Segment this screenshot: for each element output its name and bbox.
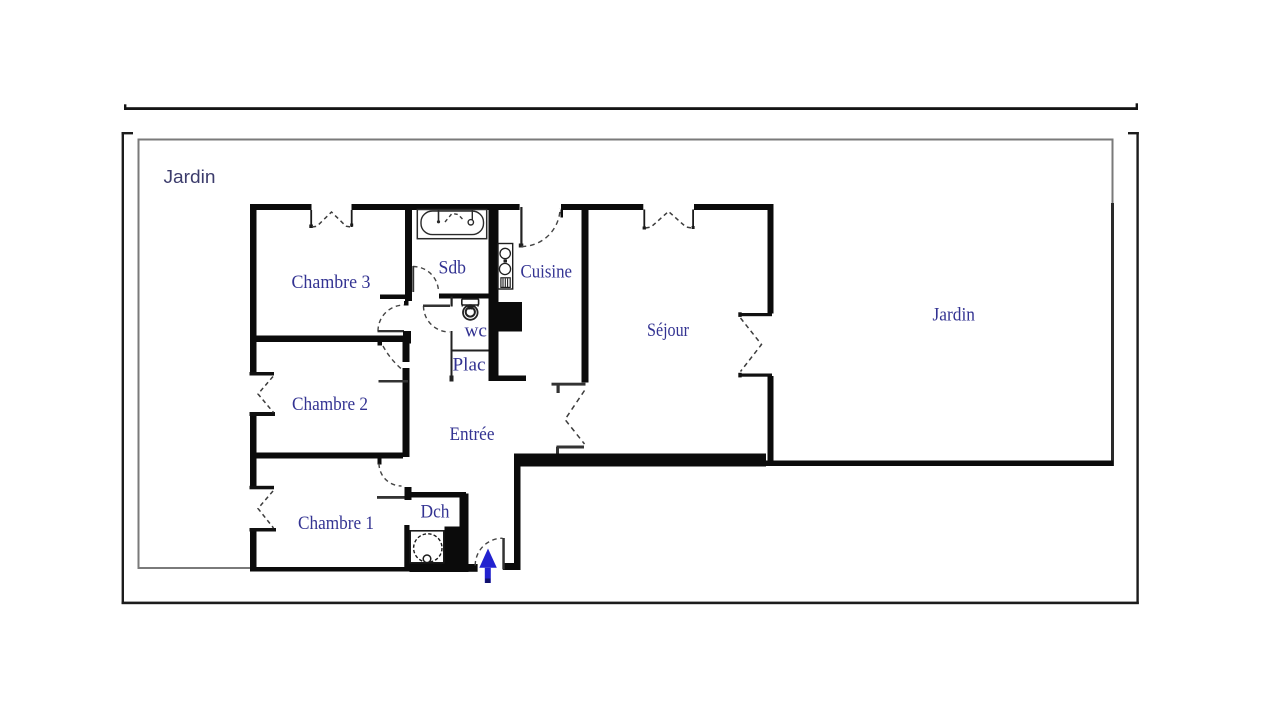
svg-text:Chambre 1: Chambre 1: [298, 514, 374, 534]
svg-text:Séjour: Séjour: [647, 321, 689, 341]
svg-text:Sdb: Sdb: [439, 259, 467, 279]
svg-text:Jardin: Jardin: [164, 167, 216, 187]
svg-text:wc: wc: [465, 321, 488, 341]
svg-text:Dch: Dch: [421, 503, 450, 523]
svg-text:Plac: Plac: [453, 356, 486, 376]
svg-text:Chambre 3: Chambre 3: [292, 273, 371, 293]
svg-text:Jardin: Jardin: [933, 306, 976, 326]
svg-text:Entrée: Entrée: [450, 425, 495, 445]
svg-text:Chambre 2: Chambre 2: [292, 395, 368, 415]
svg-text:Cuisine: Cuisine: [521, 263, 573, 283]
